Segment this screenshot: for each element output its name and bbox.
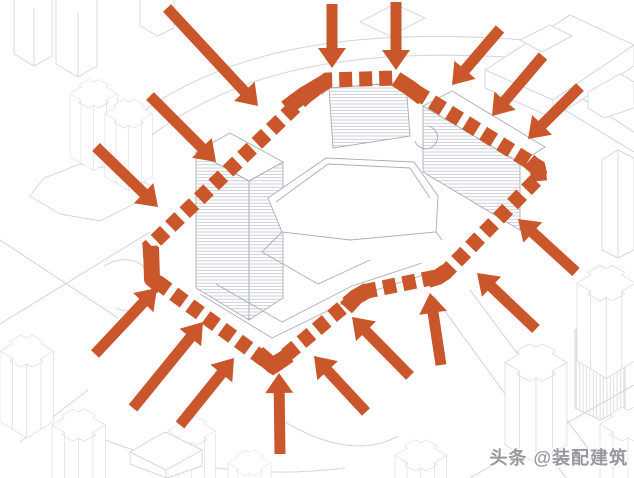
residential-tower (0, 335, 53, 438)
inward-arrow-icon (176, 358, 234, 429)
inward-arrow-icon (419, 293, 447, 366)
inward-arrow-icon (352, 317, 414, 380)
inward-arrow-icon (518, 219, 580, 276)
road-line (0, 240, 118, 318)
inward-arrow-icon (146, 92, 216, 162)
central-complex (196, 82, 545, 338)
road-line (0, 232, 150, 324)
watermark: 头条 @装配建筑 (489, 444, 628, 470)
building-outline (14, 0, 52, 66)
building-outline (56, 0, 97, 77)
boundary-corner-segment (428, 271, 447, 280)
inward-arrow-icon (314, 356, 370, 416)
inward-arrow-icon (91, 288, 157, 358)
courtyard (268, 158, 438, 240)
left-tower-facade-hatched (249, 162, 283, 320)
residential-tower (577, 265, 634, 378)
top-slab-facade-hatched (329, 82, 410, 148)
inward-arrow-icon (477, 273, 540, 333)
axonometric-site-diagram: 头条 @装配建筑 (0, 0, 634, 478)
residential-tower (395, 440, 447, 478)
inward-arrow-icon (129, 322, 203, 412)
diagram-canvas (0, 0, 634, 478)
boundary-corner-segment (258, 353, 289, 366)
watermark-text: 头条 @装配建筑 (489, 448, 628, 468)
road-line (282, 420, 398, 446)
boundary-corner-segment (346, 290, 368, 308)
inward-arrow-icon (318, 4, 346, 68)
residential-tower (52, 409, 105, 478)
boundary-corner-segment (151, 247, 162, 287)
residential-tower (228, 450, 271, 478)
inward-arrow-icon (265, 373, 293, 454)
